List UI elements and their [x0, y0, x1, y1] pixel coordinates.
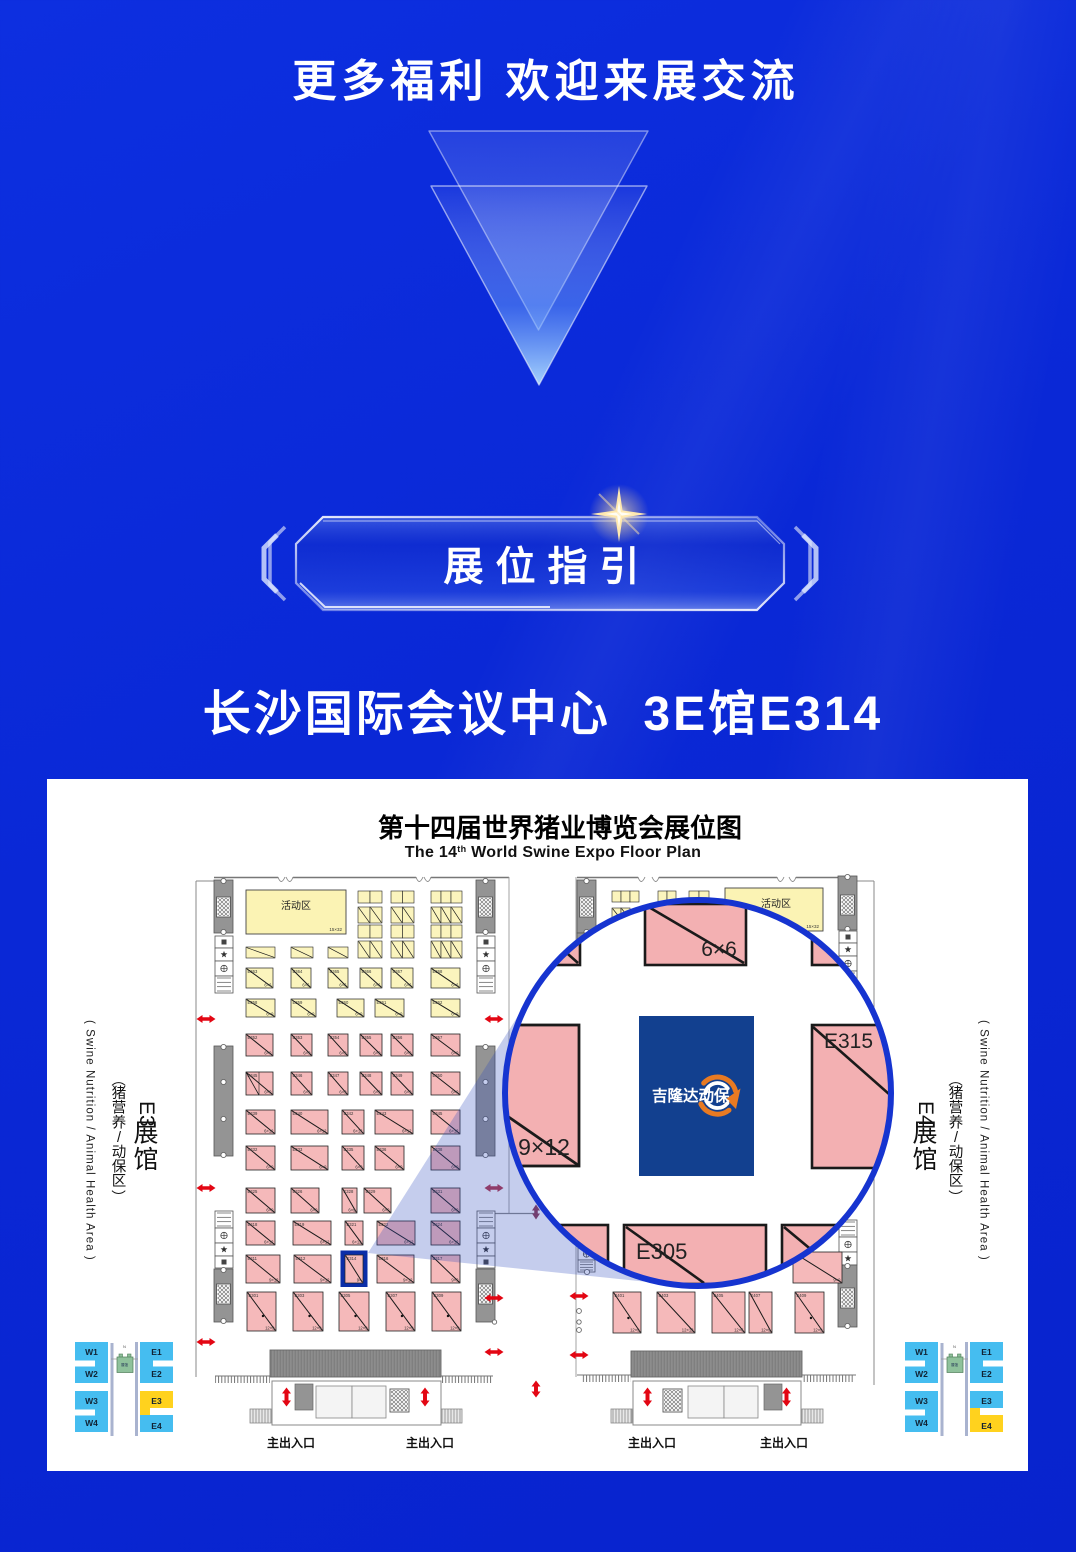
svg-text:6×9: 6×9: [404, 1090, 412, 1095]
svg-text:12×9: 12×9: [404, 1326, 414, 1331]
svg-text:猪: 猪: [949, 1085, 964, 1102]
svg-text:E339: E339: [248, 1111, 258, 1116]
svg-text:展馆: 展馆: [121, 1362, 128, 1367]
svg-text:6×6: 6×6: [373, 983, 381, 988]
svg-text:9×12: 9×12: [403, 1278, 413, 1283]
svg-text:6×9: 6×9: [307, 1012, 315, 1017]
svg-text:E349: E349: [393, 1073, 403, 1078]
svg-text:E407: E407: [751, 1293, 761, 1298]
svg-text:E356: E356: [393, 1035, 403, 1040]
svg-text:12×9: 12×9: [358, 1326, 368, 1331]
svg-text:E321: E321: [347, 1222, 357, 1227]
svg-text:E354: E354: [330, 1035, 340, 1040]
svg-text:6×9: 6×9: [266, 1208, 274, 1213]
svg-text:6×9: 6×9: [373, 1090, 381, 1095]
svg-text:区: 区: [949, 1174, 964, 1190]
svg-text:E311: E311: [248, 1256, 258, 1261]
svg-text:6×12: 6×12: [320, 1240, 330, 1245]
svg-text:展馆: 展馆: [951, 1362, 959, 1367]
svg-text:吉隆达动保: 吉隆达动保: [652, 1086, 730, 1105]
svg-text:主出入口: 主出入口: [267, 1435, 315, 1450]
svg-text:活动区: 活动区: [761, 898, 791, 910]
svg-text:E401: E401: [615, 1293, 625, 1298]
svg-text:( Swine Nutrition / Animal Hea: ( Swine Nutrition / Animal Health Area ): [84, 1020, 96, 1261]
svg-text:主出入口: 主出入口: [628, 1435, 676, 1450]
svg-text:E366: E366: [362, 969, 372, 974]
svg-text:W1: W1: [85, 1347, 98, 1357]
svg-text:12×9: 12×9: [813, 1328, 823, 1333]
svg-text:6×9: 6×9: [266, 1012, 274, 1017]
svg-text:E319: E319: [295, 1222, 305, 1227]
svg-text:保: 保: [112, 1159, 127, 1176]
svg-text:15×32: 15×32: [329, 927, 342, 932]
svg-text:营: 营: [112, 1100, 127, 1117]
svg-text:（: （: [109, 1072, 126, 1087]
svg-text:6×6: 6×6: [451, 983, 459, 988]
svg-text:E318: E318: [248, 1222, 258, 1227]
svg-text:6×9: 6×9: [451, 1012, 459, 1017]
svg-text:6×9: 6×9: [310, 1208, 318, 1213]
svg-text:6×6: 6×6: [302, 983, 310, 988]
svg-text:E2: E2: [981, 1369, 992, 1379]
svg-text:E359: E359: [293, 1000, 303, 1005]
svg-text:E340: E340: [293, 1111, 303, 1116]
svg-text:6×9: 6×9: [382, 1208, 390, 1213]
svg-text:6×6: 6×6: [404, 983, 412, 988]
svg-text:6×9: 6×9: [355, 1165, 363, 1170]
svg-text:12×9: 12×9: [630, 1328, 640, 1333]
svg-text:6×12: 6×12: [402, 1129, 412, 1134]
svg-text:E305: E305: [636, 1239, 687, 1264]
svg-text:6×9: 6×9: [264, 1051, 272, 1056]
svg-text:E336: E336: [377, 1147, 387, 1152]
svg-text:N: N: [953, 1344, 956, 1349]
svg-text:W4: W4: [915, 1418, 928, 1428]
svg-text:6×9: 6×9: [339, 1051, 347, 1056]
svg-text:）: ）: [109, 1190, 126, 1205]
svg-text:E332: E332: [248, 1147, 258, 1152]
svg-text:E358: E358: [248, 1000, 258, 1005]
svg-text:E343: E343: [377, 1111, 387, 1116]
svg-text:保: 保: [949, 1159, 964, 1176]
svg-text:E355: E355: [362, 1035, 372, 1040]
svg-text:12×9: 12×9: [312, 1326, 322, 1331]
svg-text:E346: E346: [293, 1073, 303, 1078]
svg-text:12×9: 12×9: [450, 1326, 460, 1331]
svg-text:12×9: 12×9: [761, 1328, 771, 1333]
svg-text:E345: E345: [433, 1111, 443, 1116]
svg-text:E360: E360: [339, 1000, 349, 1005]
svg-text:6×9: 6×9: [404, 1051, 412, 1056]
svg-text:第十四届世界猪业博览会展位图: 第十四届世界猪业博览会展位图: [378, 813, 742, 843]
svg-text:6×9: 6×9: [264, 1090, 272, 1095]
svg-text:E347: E347: [330, 1073, 340, 1078]
svg-text:6×9: 6×9: [451, 1051, 459, 1056]
svg-text:9×12: 9×12: [320, 1278, 330, 1283]
svg-text:E303: E303: [295, 1293, 305, 1298]
svg-text:E4: E4: [981, 1421, 992, 1431]
svg-text:6×9: 6×9: [266, 1165, 274, 1170]
svg-text:展: 展: [912, 1120, 937, 1148]
svg-text:E335: E335: [344, 1147, 354, 1152]
svg-text:E1: E1: [981, 1347, 992, 1357]
svg-text:E326: E326: [293, 1189, 303, 1194]
svg-text:15×32: 15×32: [806, 924, 819, 929]
svg-text:E316: E316: [379, 1256, 389, 1261]
svg-text:E4: E4: [151, 1421, 162, 1431]
svg-text:E364: E364: [293, 969, 303, 974]
svg-text:猪: 猪: [112, 1085, 127, 1102]
svg-text:12×9: 12×9: [265, 1326, 275, 1331]
svg-text:6×12: 6×12: [353, 1129, 363, 1134]
svg-text:9×: 9×: [357, 1278, 362, 1283]
svg-text:E314: E314: [347, 1256, 357, 1261]
svg-text:馆: 馆: [133, 1146, 158, 1174]
svg-text:E2: E2: [151, 1369, 162, 1379]
svg-text:E325: E325: [248, 1189, 258, 1194]
svg-text:6×9: 6×9: [348, 1208, 356, 1213]
svg-text:E307: E307: [388, 1293, 398, 1298]
svg-text:活动区: 活动区: [281, 900, 311, 912]
svg-text:E357: E357: [433, 1035, 443, 1040]
svg-text:E361: E361: [377, 1000, 387, 1005]
svg-text:主出入口: 主出入口: [760, 1435, 808, 1450]
svg-text:9×12: 9×12: [269, 1278, 279, 1283]
svg-text:E1: E1: [151, 1347, 162, 1357]
svg-text:展位指引: 展位指引: [444, 545, 652, 589]
svg-text:6×12: 6×12: [317, 1129, 327, 1134]
svg-text:6×9: 6×9: [303, 1051, 311, 1056]
svg-text:9×9: 9×9: [451, 1278, 459, 1283]
svg-text:( Swine Nutrition / Animal Hea: ( Swine Nutrition / Animal Health Area ): [978, 1020, 990, 1261]
svg-text:E362: E362: [433, 1000, 443, 1005]
svg-text:6×6: 6×6: [701, 938, 737, 961]
svg-text:营: 营: [949, 1100, 964, 1117]
svg-text:）: ）: [946, 1190, 963, 1205]
svg-text:E367: E367: [393, 969, 403, 974]
svg-text:主出入口: 主出入口: [406, 1435, 454, 1450]
svg-text:9×9: 9×9: [833, 1278, 841, 1283]
svg-text:12×12: 12×12: [682, 1328, 694, 1333]
svg-text:E3: E3: [151, 1396, 162, 1406]
svg-text:6×12: 6×12: [264, 1240, 274, 1245]
svg-text:6×9: 6×9: [451, 1090, 459, 1095]
svg-text:动: 动: [949, 1144, 964, 1161]
svg-text:E350: E350: [433, 1073, 443, 1078]
svg-text:E368: E368: [433, 969, 443, 974]
svg-text:E309: E309: [434, 1293, 444, 1298]
svg-text:馆: 馆: [912, 1146, 937, 1174]
svg-text:E329: E329: [366, 1189, 376, 1194]
svg-text:N: N: [123, 1344, 126, 1349]
svg-text:养: 养: [112, 1114, 127, 1131]
svg-text:E3: E3: [981, 1396, 992, 1406]
svg-text:W3: W3: [85, 1396, 98, 1406]
svg-text:9×12: 9×12: [518, 1134, 570, 1160]
svg-text:6×9: 6×9: [395, 1165, 403, 1170]
svg-text:E342: E342: [344, 1111, 354, 1116]
svg-text:6×6: 6×6: [339, 983, 347, 988]
svg-text:6×12: 6×12: [352, 1240, 362, 1245]
svg-text:E365: E365: [330, 969, 340, 974]
svg-text:养: 养: [949, 1114, 964, 1131]
svg-text:E405: E405: [714, 1293, 724, 1298]
svg-text:E352: E352: [248, 1035, 258, 1040]
svg-text:6×9: 6×9: [303, 1090, 311, 1095]
svg-text:E301: E301: [249, 1293, 259, 1298]
svg-text:（: （: [946, 1072, 963, 1087]
svg-text:E409: E409: [797, 1293, 807, 1298]
svg-text:E363: E363: [248, 969, 258, 974]
svg-text:展: 展: [133, 1120, 158, 1148]
svg-text:动: 动: [112, 1144, 127, 1161]
svg-text:12×6: 12×6: [734, 1328, 744, 1333]
svg-text:E312: E312: [296, 1256, 306, 1261]
svg-text:E305: E305: [341, 1293, 351, 1298]
svg-text:W2: W2: [85, 1369, 98, 1379]
svg-text:The 14th World Swine Expo Floo: The 14th World Swine Expo Floor Plan: [405, 844, 701, 861]
svg-text:E353: E353: [293, 1035, 303, 1040]
svg-text:E348: E348: [362, 1073, 372, 1078]
svg-text:W1: W1: [915, 1347, 928, 1357]
svg-text:区: 区: [112, 1174, 127, 1190]
svg-text:6×9: 6×9: [373, 1051, 381, 1056]
svg-text:6×6: 6×6: [264, 983, 272, 988]
svg-text:W3: W3: [915, 1396, 928, 1406]
svg-text:E315: E315: [824, 1030, 873, 1053]
svg-text:W4: W4: [85, 1418, 98, 1428]
svg-text:E333: E333: [293, 1147, 303, 1152]
svg-text:6×9: 6×9: [355, 1012, 363, 1017]
svg-text:6×9: 6×9: [395, 1012, 403, 1017]
svg-text:6×9: 6×9: [339, 1090, 347, 1095]
svg-text:E403: E403: [659, 1293, 669, 1298]
svg-text:6×9: 6×9: [319, 1165, 327, 1170]
svg-text:W2: W2: [915, 1369, 928, 1379]
svg-text:E328: E328: [344, 1189, 354, 1194]
svg-text:6×12: 6×12: [264, 1129, 274, 1134]
